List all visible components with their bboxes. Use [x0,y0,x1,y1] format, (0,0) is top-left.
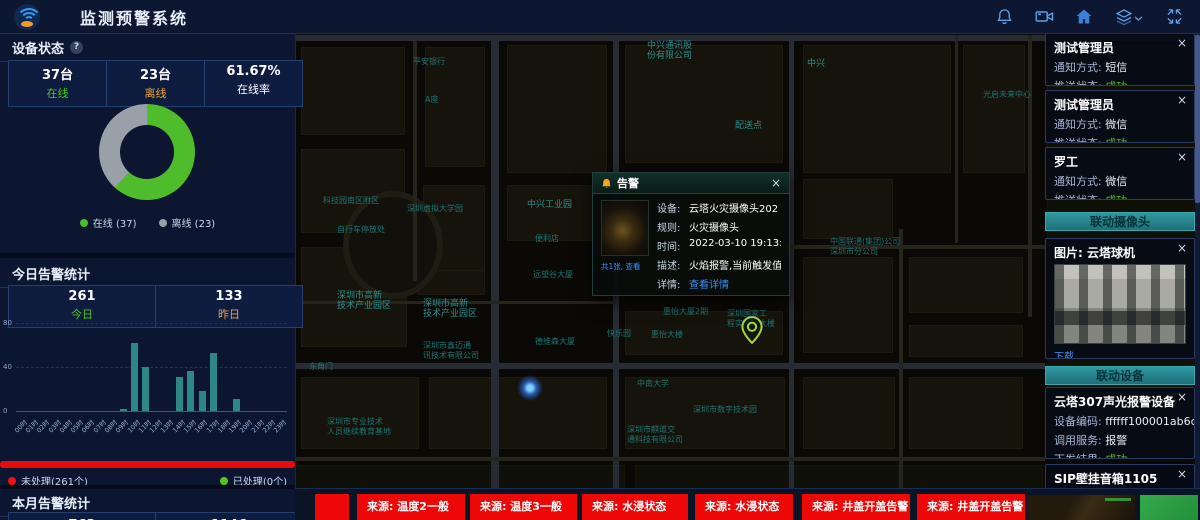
map-block [295,465,625,488]
fullscreen-icon[interactable] [1164,7,1184,27]
green-location-pin[interactable] [741,316,763,348]
map-label: 自行车停放处 [337,225,385,235]
map-block [803,257,893,353]
map-label: 深圳市专业技术 人员继续教育基地 [327,417,391,437]
alarm-field-row: 规则:火灾摄像头 [657,219,781,234]
map-label: 中兴 [807,59,825,69]
alarm-field-label: 描述: [657,257,689,272]
map-label: 中兴通讯股 份有限公司 [647,41,692,61]
bell-icon[interactable] [994,7,1014,27]
map-label: 深圳市数字技术园 [693,405,757,415]
map-label: 东角门 [309,362,333,372]
stat-label: 在线率 [205,81,302,97]
stat-value: 133 [156,289,302,304]
stat-label: 昨日 [156,306,302,322]
map-block [909,257,1023,313]
map-block [625,45,783,163]
card-field-value: 成功 [1105,137,1127,143]
card-title: 罗工 [1054,153,1186,170]
month-stats-row: 7631146 [8,512,303,520]
stat-cell: 23台离线 [107,61,205,106]
map-block [301,47,405,135]
map-label: 配送点 [735,121,762,131]
card-field-value: 成功 [1105,194,1127,200]
map-block [803,377,895,449]
alert-tile[interactable]: 来源: 温度2一般 [357,494,465,520]
map-label: 光启未来中心 [983,90,1031,100]
bottom-alert-bar: 来源: 温度2一般来源: 温度3一般来源: 水浸状态来源: 水浸状态来源: 井盖… [295,488,1200,520]
alert-tile-partial[interactable] [315,494,349,520]
section-divider [0,253,295,258]
top-header: 监测预警系统 [0,0,1200,34]
legend-dot [159,219,167,227]
alarm-field-label: 规则: [657,219,689,234]
map-road [1028,35,1032,317]
map-label: 科技园南区附区 [323,196,379,206]
map-label: A座 [425,95,438,105]
map-label: 便利店 [535,234,559,244]
card-field-label: 调用服务: [1054,434,1105,447]
close-icon[interactable]: × [1177,151,1187,163]
card-field-label: 设备编码: [1054,415,1105,428]
card-title: 云塔307声光报警设备 [1054,393,1186,410]
device-stats-row: 37台在线23台离线61.67%在线率 [8,60,303,107]
download-link[interactable]: 下载 [1054,348,1186,359]
stat-value: 37台 [9,64,106,83]
card-field-label: 推送状态: [1054,194,1105,200]
right-scrollbar [1195,33,1200,488]
section-divider [0,485,295,489]
today-alarms-header: 今日告警统计 [0,261,295,288]
alarm-field-row: 时间:2022-03-10 19:13:07 [657,238,781,253]
alarm-field-label: 时间: [657,238,689,253]
map-label: 深圳市高新 技术产业园区 [423,299,477,319]
blue-pulse-dot[interactable] [517,375,543,401]
close-icon[interactable]: × [771,177,781,189]
card-field-row: 推送状态: 成功 [1054,78,1186,86]
camera-snapshot[interactable] [1054,264,1186,344]
map-road [295,363,1045,369]
video-camera-icon[interactable] [1034,7,1054,27]
card-field-row: 设备编码: ffffff100001ab6c [1054,413,1186,429]
map-label: 惠怡大厦2期 [663,307,708,317]
card-field-row: 下发结果: 成功 [1054,451,1186,459]
card-field-row: 推送状态: 成功 [1054,135,1186,143]
chart-gridline [16,323,287,324]
bar [187,371,194,411]
alert-tile[interactable]: 来源: 温度3一般 [470,494,577,520]
scrollbar-thumb[interactable] [1195,35,1200,203]
device-card: ×云塔307声光报警设备设备编码: ffffff100001ab6c调用服务: … [1045,387,1195,459]
help-icon[interactable]: ? [70,41,83,54]
stat-value: 261 [9,289,155,304]
alarm-fields: 设备:云塔火灾摄像头202规则:火灾摄像头时间:2022-03-10 19:13… [657,200,781,295]
chevron-down-icon [1135,17,1142,20]
card-field-value: 微信 [1105,175,1127,188]
legend-dot [8,477,16,485]
map-road [413,41,417,281]
stat-label: 今日 [9,306,155,322]
alarm-field-row: 详情:查看详情 [657,276,781,291]
bar [120,409,127,411]
alarm-popup-titlebar: 告警 × [593,173,789,194]
map-block [301,377,419,449]
y-axis-label: 40 [3,363,12,371]
map-block [635,465,1043,488]
alarm-field-value: 火灾摄像头 [689,219,739,234]
legend-dot [220,477,228,485]
map-label: 中兴工业园 [527,200,572,210]
bar [210,353,217,411]
page-title: 监测预警系统 [80,5,188,29]
card-field-row: 通知方式: 微信 [1054,116,1186,132]
card-field-row: 通知方式: 微信 [1054,173,1186,189]
legend-dot [80,219,88,227]
linked-devices-banner: 联动设备 [1045,366,1195,385]
close-icon[interactable]: × [1177,391,1187,403]
notification-card: ×罗工通知方式: 微信推送状态: 成功 [1045,147,1195,200]
alarm-field-value: 2022-03-10 19:13:07 [689,238,781,253]
linked-cameras-banner: 联动摄像头 [1045,212,1195,231]
alert-tile[interactable]: 来源: 水浸状态 [695,494,793,520]
month-alarms-title: 本月告警统计 [12,493,90,512]
map-label: 中南大学 [637,379,669,389]
alert-camera-thumbnail[interactable] [1028,495,1135,520]
alarm-field-value: 火焰报警,当前触发值为 [689,257,781,272]
chart-gridline [16,367,287,368]
hourly-alarm-bar-chart: 8040000时01时02时03时04时05时06时07时08时09时10时11… [0,321,295,441]
alarm-field-value: 云塔火灾摄像头202 [689,200,778,215]
map-label: 德维森大厦 [535,337,575,347]
photo-card-title: 图片: 云塔球机 [1054,244,1186,261]
map-block [909,325,1023,357]
unprocessed-progress-bar [0,461,295,468]
map-label: 平安银行 [413,57,445,67]
right-notification-panel: ×测试管理员通知方式: 短信推送状态: 成功×测试管理员通知方式: 微信推送状态… [1045,33,1195,488]
map-block [803,179,893,239]
stat-cell: 61.67%在线率 [205,61,302,106]
card-field-label: 通知方式: [1054,175,1105,188]
map-label: 深圳虚拟大学园 [407,204,463,214]
layers-icon[interactable] [1114,7,1144,27]
stat-cell: 37台在线 [9,61,107,106]
device-status-header: 设备状态 ? [0,35,295,62]
alarm-field-label: 设备: [657,200,689,215]
alarm-field-row: 设备:云塔火灾摄像头202 [657,200,781,215]
map-label: 中国联通(集团)公司 深圳市分公司 [830,237,900,257]
donut-legend: 在线 (37)离线 (23) [0,215,295,230]
map-block [909,377,1023,449]
notification-card: ×测试管理员通知方式: 短信推送状态: 成功 [1045,33,1195,86]
stat-label: 在线 [9,85,106,101]
camera-photo-card: × 图片: 云塔球机 下载 [1045,238,1195,359]
alarm-snapshot-image[interactable] [601,200,649,256]
y-axis-label: 80 [3,319,12,327]
card-field-row: 推送状态: 成功 [1054,192,1186,200]
device-status-title: 设备状态 [12,38,64,57]
month-stat-value: 1146 [156,513,302,520]
header-icon-group [994,7,1184,27]
card-title: 测试管理员 [1054,39,1186,56]
bar [131,343,138,411]
month-stat-value: 763 [9,513,156,520]
map-block [803,45,951,173]
legend-item: 离线 (23) [159,215,216,230]
card-field-label: 通知方式: [1054,118,1105,131]
notification-card: ×测试管理员通知方式: 微信推送状态: 成功 [1045,90,1195,143]
map-road [899,229,903,488]
map-road [955,35,958,243]
close-icon[interactable]: × [1177,468,1187,480]
device-card: ×SIP壁挂音箱1105设备编码: 1105 [1045,464,1195,488]
bar [142,367,149,411]
map-road [491,35,499,488]
alarm-popup: 告警 × 共1张, 查看 设备:云塔火灾摄像头202规则:火灾摄像头时间:202… [592,172,790,296]
card-field-label: 推送状态: [1054,137,1105,143]
stat-value: 61.67% [205,64,302,79]
card-field-value: 微信 [1105,118,1127,131]
card-title: 测试管理员 [1054,96,1186,113]
map-label: 深圳市高新 技术产业园区 [337,291,391,311]
card-field-label: 通知方式: [1054,61,1105,74]
map-block [507,45,607,173]
card-field-row: 调用服务: 报警 [1054,432,1186,448]
device-status-donut-chart [99,104,195,200]
app-logo-icon [14,4,40,30]
card-field-value: 报警 [1105,434,1127,447]
card-field-row: 通知方式: 短信 [1054,59,1186,75]
alarm-popup-title: 告警 [617,175,639,191]
map-block [963,45,1025,173]
legend-label: 离线 (23) [172,215,216,230]
close-icon[interactable]: × [1177,37,1187,49]
chart-gridline [16,411,287,412]
alarm-field-row: 描述:火焰报警,当前触发值为 [657,257,781,272]
alarm-field-label: 详情: [657,276,689,291]
card-field-value: 短信 [1105,61,1127,74]
alert-green-thumbnail[interactable] [1140,495,1198,520]
home-icon[interactable] [1074,7,1094,27]
today-alarms-title: 今日告警统计 [12,264,90,283]
map-label: 深圳市鑫迈通 讯技术有限公司 [423,341,479,361]
snapshot-view-link[interactable]: 共1张, 查看 [601,261,647,272]
map-label: 惠怡大楼 [651,330,683,340]
close-icon[interactable]: × [1177,94,1187,106]
stat-label: 离线 [107,85,204,101]
alarm-popup-body: 共1张, 查看 设备:云塔火灾摄像头202规则:火灾摄像头时间:2022-03-… [593,194,789,295]
app-root: 监测预警系统 设备状态 ? 37台在线23台离线61.67%在线率 [0,0,1200,520]
card-field-value: 成功 [1105,80,1127,86]
alarm-icon [601,178,612,189]
close-icon[interactable]: × [1177,242,1187,254]
bar [233,399,240,411]
card-title: SIP壁挂音箱1105 [1054,470,1186,487]
card-field-label: 下发结果: [1054,453,1105,459]
stat-value: 23台 [107,64,204,83]
alert-tile[interactable]: 来源: 水浸状态 [582,494,688,520]
card-field-value: 成功 [1105,453,1127,459]
left-stats-panel: 设备状态 ? 37台在线23台离线61.67%在线率 在线 (37)离线 (23… [0,33,296,520]
map-label: 快乐园 [607,329,631,339]
bar [176,377,183,411]
bar [199,391,206,411]
legend-item: 在线 (37) [80,215,137,230]
map-road [785,245,1045,249]
card-field-label: 推送状态: [1054,80,1105,86]
y-axis-label: 0 [3,407,7,415]
view-details-link[interactable]: 查看详情 [689,276,729,291]
map-label: 深圳市麒道交 通科技有限公司 [627,425,683,445]
alert-tile[interactable]: 来源: 井盖开盖告警 [802,494,910,520]
map-label: 远望谷大厦 [533,270,573,280]
map-road [295,457,1045,461]
legend-label: 在线 (37) [93,215,137,230]
card-field-value: ffffff100001ab6c [1105,415,1195,428]
alert-tile[interactable]: 来源: 井盖开盖告警 [917,494,1025,520]
